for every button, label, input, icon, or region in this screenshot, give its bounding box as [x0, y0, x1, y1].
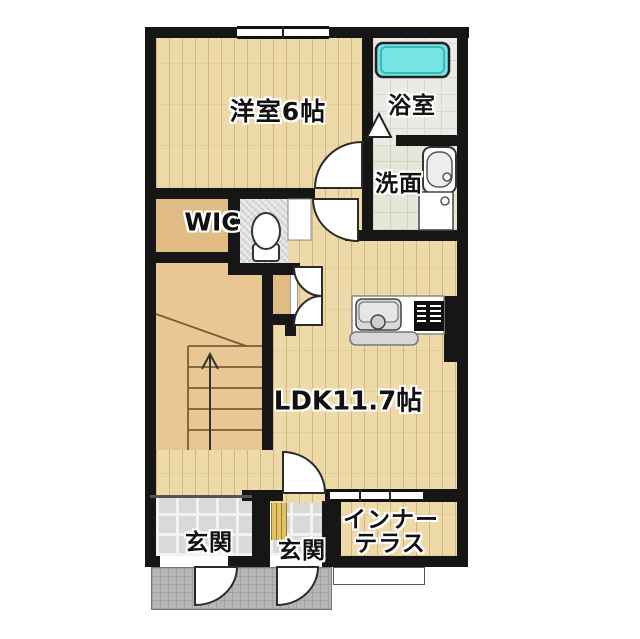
washroom-door-icon: [313, 199, 358, 241]
front-door-left-icon: [195, 567, 237, 605]
stairs-up-arrow-icon: [202, 354, 218, 450]
label-ldk: LDK11.7帖: [274, 381, 422, 418]
floor-plan: 洋室6帖 浴室 洗面 WIC LDK11.7帖 玄関 玄関 インナー テラス: [0, 0, 640, 639]
vanity-sink-icon: [423, 147, 456, 193]
toilet-door-icon: [288, 199, 311, 240]
label-entrance-left: 玄関: [185, 523, 233, 557]
toilet-icon: [252, 213, 280, 261]
washing-machine-icon: [419, 192, 453, 230]
label-inner-terrace-line2: テラス: [354, 524, 426, 558]
western-room-door-icon: [315, 142, 362, 188]
label-western-room: 洋室6帖: [230, 92, 326, 128]
closet-door-bottom-icon: [294, 296, 322, 325]
label-washroom: 洗面: [375, 164, 423, 198]
kitchen-icon: [350, 296, 444, 345]
closet-door-top-icon: [294, 267, 322, 296]
bathtub-icon: [376, 43, 449, 77]
label-wic: WIC: [184, 208, 239, 237]
label-bathroom: 浴室: [388, 86, 436, 120]
label-entrance-right: 玄関: [278, 531, 326, 565]
ldk-entrance-door-icon: [283, 452, 325, 493]
kitchen-counter-icon: [350, 332, 418, 345]
front-door-right-icon: [277, 567, 318, 605]
